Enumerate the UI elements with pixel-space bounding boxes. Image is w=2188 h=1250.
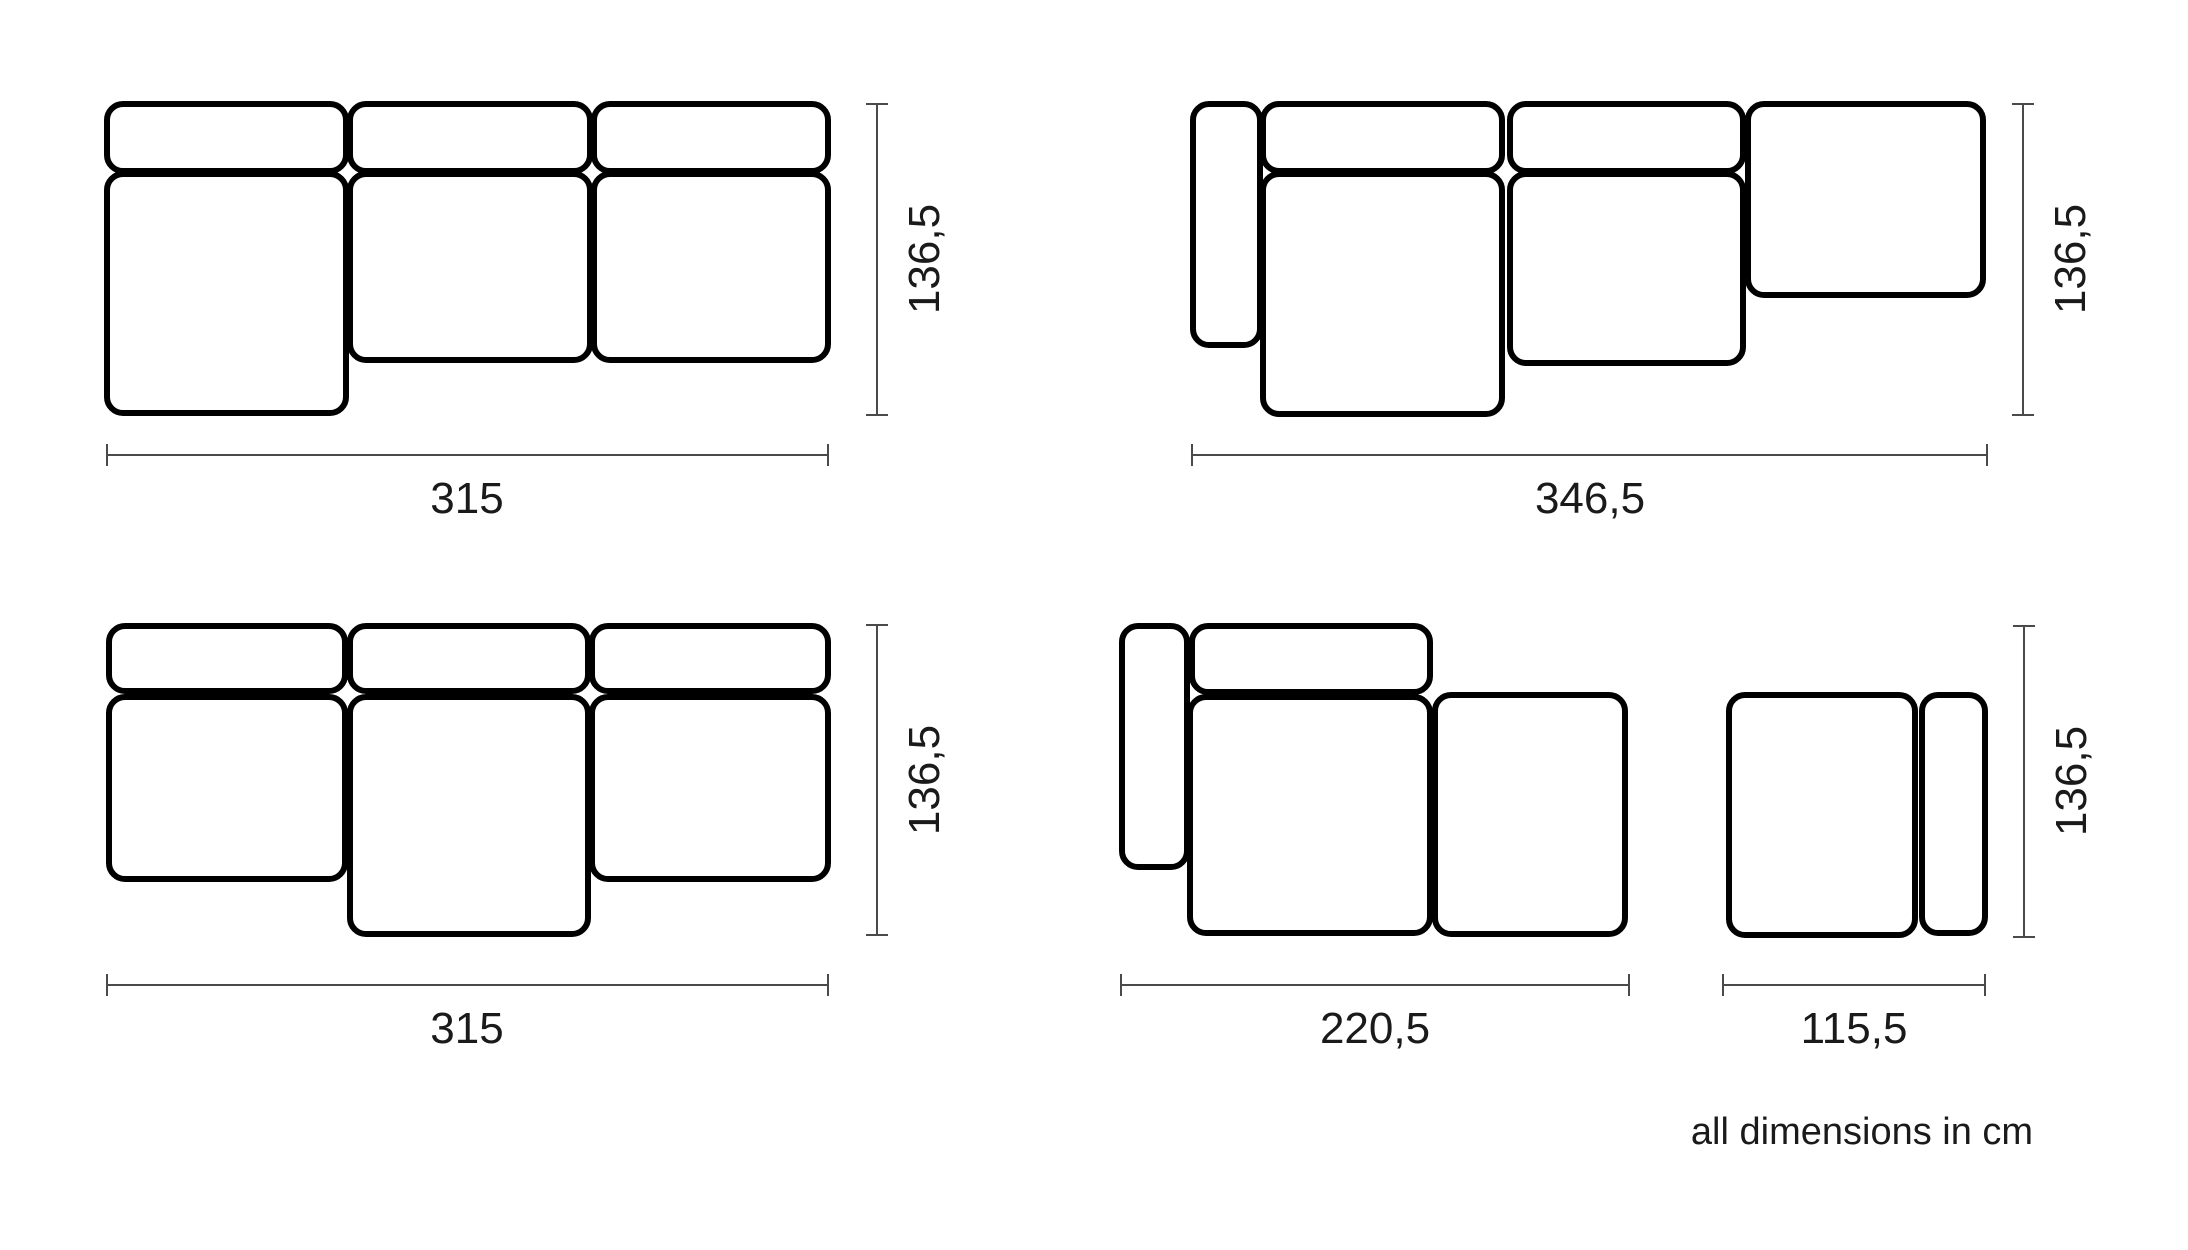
depth-dim-label: 136,5: [2046, 204, 2095, 314]
seat-cushion: [350, 174, 590, 360]
chaise-seat-cushion: [350, 697, 588, 934]
width-dim-label: 315: [430, 1004, 503, 1053]
seat-cushion: [592, 697, 828, 879]
armrest-cushion: [1122, 626, 1187, 867]
backrest-cushion: [350, 104, 590, 171]
config-ottoman-armrest-right: 115,5136,5: [1723, 626, 2096, 1053]
width-dim-label: 315: [430, 474, 503, 523]
open-end-seat-cushion: [1435, 695, 1625, 934]
open-end-seat-cushion: [1748, 104, 1983, 295]
seat-cushion: [1510, 174, 1743, 363]
depth-dim-label: 136,5: [900, 725, 949, 835]
backrest-cushion: [1263, 104, 1502, 171]
seat-cushion: [1729, 695, 1915, 935]
seat-cushion: [594, 174, 828, 360]
armrest-cushion: [1193, 104, 1260, 345]
width-dim-label: 115,5: [1801, 1004, 1908, 1053]
config-three-seater-chaise-middle: 315136,5: [107, 625, 949, 1053]
config-armrest-chaise-open-end: 346,5136,5: [1192, 104, 2095, 523]
sofa-dimensions-diagram: all dimensions in cm 315136,5346,5136,53…: [0, 0, 2188, 1250]
chaise-seat-cushion: [1263, 174, 1502, 414]
armrest-cushion: [1922, 695, 1985, 933]
backrest-cushion: [1510, 104, 1743, 171]
seat-cushion: [109, 697, 345, 879]
config-three-seater-chaise-left: 315136,5: [107, 104, 949, 523]
backrest-cushion: [109, 626, 345, 691]
depth-dim-label: 136,5: [2047, 726, 2096, 836]
backrest-cushion: [592, 626, 828, 691]
backrest-cushion: [107, 104, 346, 171]
backrest-cushion: [350, 626, 588, 691]
chaise-seat-cushion: [107, 174, 346, 413]
units-note: all dimensions in cm: [1691, 1111, 2033, 1153]
diagram-canvas: all dimensions in cm 315136,5346,5136,53…: [0, 0, 2188, 1250]
config-armrest-chaise-ottoman: 220,5: [1121, 626, 1629, 1053]
backrest-cushion: [1192, 626, 1430, 692]
chaise-seat-cushion: [1190, 697, 1430, 933]
width-dim-label: 220,5: [1320, 1004, 1430, 1053]
depth-dim-label: 136,5: [900, 204, 949, 314]
width-dim-label: 346,5: [1535, 474, 1645, 523]
backrest-cushion: [594, 104, 828, 171]
